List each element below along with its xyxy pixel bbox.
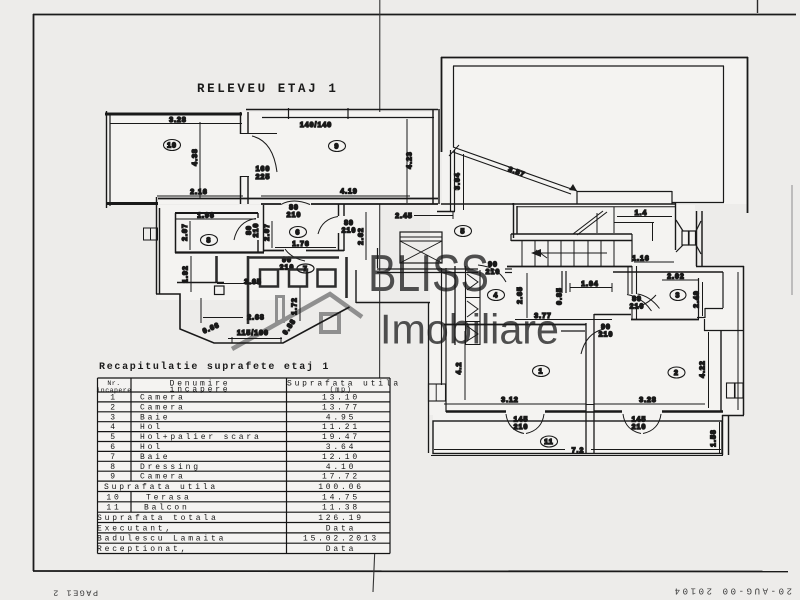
svg-text:3: 3: [110, 413, 118, 422]
svg-text:10: 10: [167, 143, 177, 150]
svg-text:3.64: 3.64: [326, 443, 356, 452]
svg-text:Camera: Camera: [140, 394, 186, 403]
svg-text:225: 225: [256, 174, 271, 181]
svg-text:Data: Data: [326, 545, 356, 554]
svg-text:115/100: 115/100: [237, 330, 269, 337]
svg-text:160: 160: [256, 166, 271, 173]
svg-text:Data: Data: [326, 524, 356, 533]
svg-text:2.07: 2.07: [264, 223, 271, 241]
svg-text:Hol+palier scara: Hol+palier scara: [140, 433, 262, 442]
svg-text:Dressing: Dressing: [140, 463, 201, 472]
svg-text:Balcon: Balcon: [144, 504, 190, 513]
svg-text:210: 210: [630, 304, 645, 311]
svg-text:13.77: 13.77: [322, 403, 360, 412]
svg-text:2.45: 2.45: [395, 213, 413, 220]
svg-text:7: 7: [303, 266, 308, 273]
svg-text:9: 9: [110, 473, 118, 482]
svg-text:3.65: 3.65: [244, 279, 262, 286]
svg-text:Suprafata totala: Suprafata totala: [97, 514, 219, 523]
svg-text:2.16: 2.16: [190, 189, 208, 196]
svg-text:15.02.2013: 15.02.2013: [303, 535, 379, 544]
svg-text:19.47: 19.47: [322, 433, 360, 442]
svg-text:Suprafata utila: Suprafata utila: [104, 483, 218, 492]
svg-text:1.92: 1.92: [183, 265, 190, 283]
svg-text:Hol: Hol: [140, 443, 163, 452]
svg-text:145: 145: [514, 417, 529, 424]
svg-text:3.28: 3.28: [169, 117, 187, 124]
svg-text:4.10: 4.10: [326, 463, 356, 472]
svg-text:3.12: 3.12: [501, 397, 519, 404]
svg-text:2: 2: [674, 370, 679, 377]
svg-text:4: 4: [110, 423, 118, 432]
svg-text:100.06: 100.06: [318, 483, 364, 492]
svg-text:1: 1: [539, 369, 544, 376]
svg-text:126.19: 126.19: [318, 514, 364, 523]
svg-text:1.4: 1.4: [635, 210, 648, 217]
svg-text:8: 8: [110, 463, 118, 472]
svg-text:3.77: 3.77: [534, 313, 552, 320]
svg-text:Recapitulatie suprafete etaj 1: Recapitulatie suprafete etaj 1: [99, 361, 330, 373]
svg-text:11.21: 11.21: [322, 423, 360, 432]
svg-text:4.23: 4.23: [407, 151, 414, 169]
svg-text:4.22: 4.22: [700, 360, 707, 378]
svg-text:3.28: 3.28: [639, 397, 657, 404]
svg-text:PAGE1 2: PAGE1 2: [52, 588, 98, 598]
svg-text:Executant,: Executant,: [97, 524, 173, 533]
svg-text:7.2: 7.2: [572, 448, 585, 455]
svg-text:210: 210: [342, 228, 357, 235]
svg-text:11: 11: [106, 504, 121, 513]
svg-text:12.10: 12.10: [322, 453, 360, 462]
svg-text:7: 7: [110, 453, 118, 462]
svg-text:210: 210: [486, 269, 501, 276]
svg-text:Hol: Hol: [140, 423, 163, 432]
svg-text:2.62: 2.62: [358, 227, 365, 245]
svg-text:140/140: 140/140: [300, 122, 332, 129]
svg-text:145: 145: [632, 417, 647, 424]
svg-text:4.19: 4.19: [340, 189, 358, 196]
svg-text:4.95: 4.95: [326, 413, 356, 422]
svg-text:10: 10: [106, 493, 121, 502]
svg-text:RELEVEU ETAJ 1: RELEVEU ETAJ 1: [197, 82, 338, 96]
svg-text:4.2: 4.2: [456, 362, 463, 375]
svg-text:Receptionat,: Receptionat,: [97, 545, 188, 554]
svg-text:Terasa: Terasa: [146, 493, 192, 502]
svg-text:3: 3: [676, 293, 681, 300]
svg-text:1.76: 1.76: [292, 241, 310, 248]
svg-text:8: 8: [207, 238, 212, 245]
svg-text:5: 5: [461, 229, 466, 236]
svg-text:Baie: Baie: [140, 413, 170, 422]
svg-text:90: 90: [601, 324, 611, 331]
svg-text:1.58: 1.58: [711, 429, 718, 447]
svg-text:Imobiliare: Imobiliare: [380, 306, 559, 353]
svg-text:9: 9: [335, 144, 340, 151]
svg-text:13.10: 13.10: [322, 394, 360, 403]
svg-text:Badulescu Lamaita: Badulescu Lamaita: [97, 535, 226, 544]
svg-text:5: 5: [110, 433, 118, 442]
svg-text:1.72: 1.72: [292, 297, 299, 315]
svg-text:80: 80: [344, 220, 354, 227]
svg-text:14.75: 14.75: [322, 493, 360, 502]
svg-text:2.07: 2.07: [182, 223, 189, 241]
svg-text:11.38: 11.38: [322, 504, 360, 513]
svg-text:Baie: Baie: [140, 453, 170, 462]
svg-text:80: 80: [246, 225, 253, 235]
svg-text:2.65: 2.65: [517, 286, 524, 304]
svg-text:210: 210: [287, 212, 302, 219]
svg-text:20-AUG-00 20104: 20-AUG-00 20104: [672, 586, 792, 596]
svg-text:1.04: 1.04: [581, 281, 599, 288]
svg-text:11: 11: [544, 439, 553, 446]
svg-text:210: 210: [599, 332, 614, 339]
svg-text:6: 6: [110, 443, 118, 452]
svg-text:Camera: Camera: [140, 473, 186, 482]
svg-text:BLISS: BLISS: [368, 245, 489, 303]
svg-text:2: 2: [110, 403, 118, 412]
svg-text:90: 90: [488, 262, 498, 269]
svg-text:17.72: 17.72: [322, 473, 360, 482]
svg-text:Camera: Camera: [140, 403, 186, 412]
svg-text:6: 6: [296, 230, 301, 237]
svg-text:4: 4: [494, 293, 499, 300]
svg-text:80: 80: [289, 205, 299, 212]
svg-text:4.38: 4.38: [192, 148, 199, 166]
svg-text:210: 210: [632, 424, 647, 431]
svg-text:210: 210: [253, 223, 260, 238]
svg-text:1.16: 1.16: [632, 256, 650, 263]
svg-text:2.02: 2.02: [667, 274, 685, 281]
svg-text:1.98: 1.98: [197, 213, 215, 220]
svg-text:2.49: 2.49: [694, 290, 701, 308]
svg-text:2.68: 2.68: [247, 315, 265, 322]
svg-text:1: 1: [110, 394, 118, 403]
svg-text:0.85: 0.85: [557, 287, 564, 305]
svg-text:3.04: 3.04: [455, 172, 462, 190]
